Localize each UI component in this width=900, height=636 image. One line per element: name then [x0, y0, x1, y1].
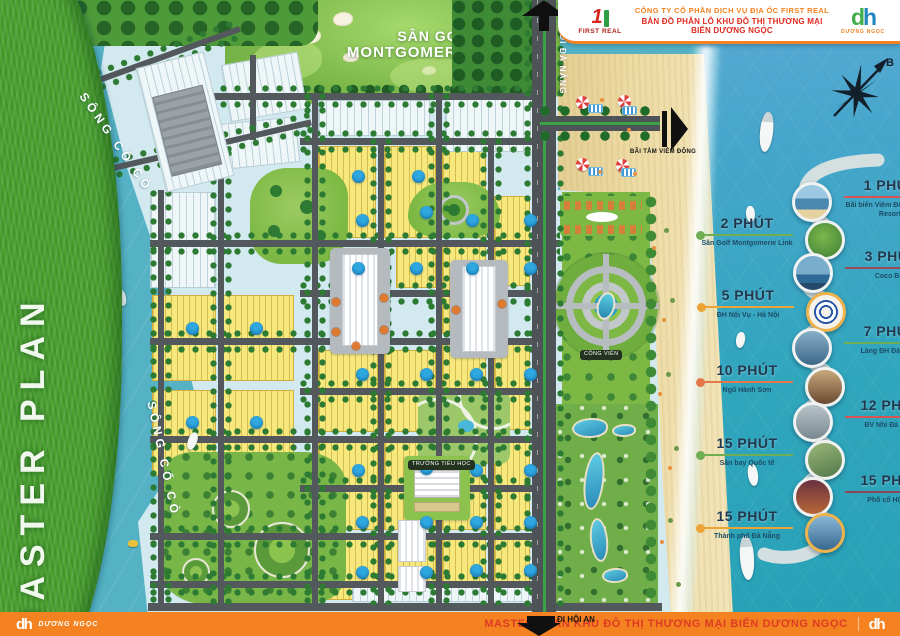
compass-north-letter: B	[886, 57, 894, 69]
beach-access-road	[540, 116, 660, 131]
lot-marker-dot	[250, 322, 263, 335]
lot-marker-dot	[420, 516, 433, 529]
lot-marker-dot	[470, 564, 483, 577]
lot-marker-dot	[352, 464, 365, 477]
footer-logo-text: DƯƠNG NGỌC	[38, 621, 98, 628]
street	[158, 190, 164, 605]
road-north-label: ĐI ĐÀ NẴNG	[558, 34, 568, 95]
school-label: TRƯỜNG TIỂU HỌC	[408, 460, 475, 470]
lot-marker-dot	[186, 416, 199, 429]
duong-ngoc-logo-icon: dh	[869, 616, 884, 633]
street	[436, 93, 442, 605]
person-dot	[633, 172, 637, 176]
beach-mat-icon	[588, 104, 603, 113]
person-dot	[600, 98, 604, 102]
lot-marker-dot	[470, 368, 483, 381]
duong-ngoc-logo-text: DƯƠNG NGỌC	[841, 29, 885, 35]
lot-marker-dot	[420, 566, 433, 579]
lot-marker-dot	[412, 170, 425, 183]
sand-bunker	[333, 12, 353, 26]
street	[300, 138, 540, 145]
lot-marker-dot	[470, 516, 483, 529]
person-dot	[668, 466, 672, 470]
route-path	[700, 140, 900, 580]
person-dot	[652, 246, 656, 250]
duong-ngoc-logo: dh DƯƠNG NGỌC	[836, 6, 890, 35]
beach-mat-icon	[622, 106, 637, 115]
lot-marker-dot	[524, 564, 537, 577]
beach-vegetation	[674, 446, 679, 451]
lot-marker-dot	[352, 262, 365, 275]
beach-vegetation	[666, 372, 671, 377]
south-arrow-icon	[517, 623, 561, 636]
duong-ngoc-logo-icon: dh	[851, 6, 875, 28]
street	[150, 436, 534, 443]
first-real-logo-icon: 1	[591, 7, 608, 27]
person-dot	[662, 318, 666, 322]
master-plan-title: MASTER PLAN	[14, 248, 53, 636]
lot-marker-dot	[524, 262, 537, 275]
street	[150, 533, 534, 540]
header-titles: CÔNG TY CỔ PHẦN DỊCH VỤ ĐỊA ỐC FIRST REA…	[628, 6, 836, 35]
lot-marker-dot	[524, 368, 537, 381]
park-label: CÔNG VIÊN	[580, 350, 622, 360]
first-real-logo: 1 FIRST REAL	[572, 7, 628, 35]
street	[312, 93, 318, 605]
resort-row	[560, 196, 646, 236]
beach-vegetation	[676, 582, 681, 587]
lot-marker-dot	[420, 206, 433, 219]
boat-icon	[128, 540, 138, 547]
street	[488, 138, 494, 605]
street	[378, 138, 384, 605]
lot-marker-dot	[356, 516, 369, 529]
lot-marker-dot	[356, 214, 369, 227]
header-bar: 1 FIRST REAL CÔNG TY CỔ PHẦN DỊCH VỤ ĐỊA…	[558, 0, 900, 44]
dune-trees	[645, 196, 660, 608]
lot-marker-dot	[524, 214, 537, 227]
lot-marker-dot	[524, 516, 537, 529]
lot-marker-dot	[524, 464, 537, 477]
first-real-logo-text: FIRST REAL	[578, 28, 621, 35]
person-dot	[627, 128, 631, 132]
lot-marker-dot	[356, 566, 369, 579]
footer-divider	[858, 617, 859, 631]
lot-marker-dot	[410, 262, 423, 275]
lot-marker-dot	[420, 368, 433, 381]
beach-vegetation	[668, 518, 673, 523]
lot-marker-dot	[352, 170, 365, 183]
resort-pool	[612, 424, 636, 437]
poster-title: BẢN ĐỒ PHÂN LÔ KHU ĐÔ THỊ THƯƠNG MẠI BIỂ…	[632, 17, 832, 35]
lot-marker-dot	[466, 214, 479, 227]
person-dot	[658, 392, 662, 396]
tower-building	[462, 266, 496, 352]
resort-pool	[602, 568, 628, 583]
beach-vegetation	[664, 228, 669, 233]
footer-logo: dh DƯƠNG NGỌC	[16, 616, 98, 633]
beach-vegetation	[670, 298, 675, 303]
lot-marker-dot	[186, 322, 199, 335]
street	[218, 150, 224, 605]
beach-arrow-icon	[671, 107, 688, 151]
person-dot	[598, 170, 602, 174]
street	[150, 581, 534, 588]
footer-bar: dh DƯƠNG NGỌC MASTER PLAN KHU ĐÔ THỊ THƯ…	[0, 612, 900, 636]
company-name: CÔNG TY CỔ PHẦN DỊCH VỤ ĐỊA ỐC FIRST REA…	[632, 6, 832, 15]
lot-marker-dot	[250, 416, 263, 429]
lot-marker-dot	[466, 262, 479, 275]
resort-pool	[572, 418, 608, 438]
lot-marker-dot	[356, 368, 369, 381]
master-plan-poster: SÂN GOLF MONTGOMERIE LINKS CÔNG VIÊN	[0, 0, 900, 636]
road-south-label: ĐI HỘI AN	[557, 615, 595, 624]
person-dot	[660, 540, 664, 544]
duong-ngoc-logo-icon: dh	[16, 616, 31, 633]
compass-icon: B	[818, 50, 896, 128]
